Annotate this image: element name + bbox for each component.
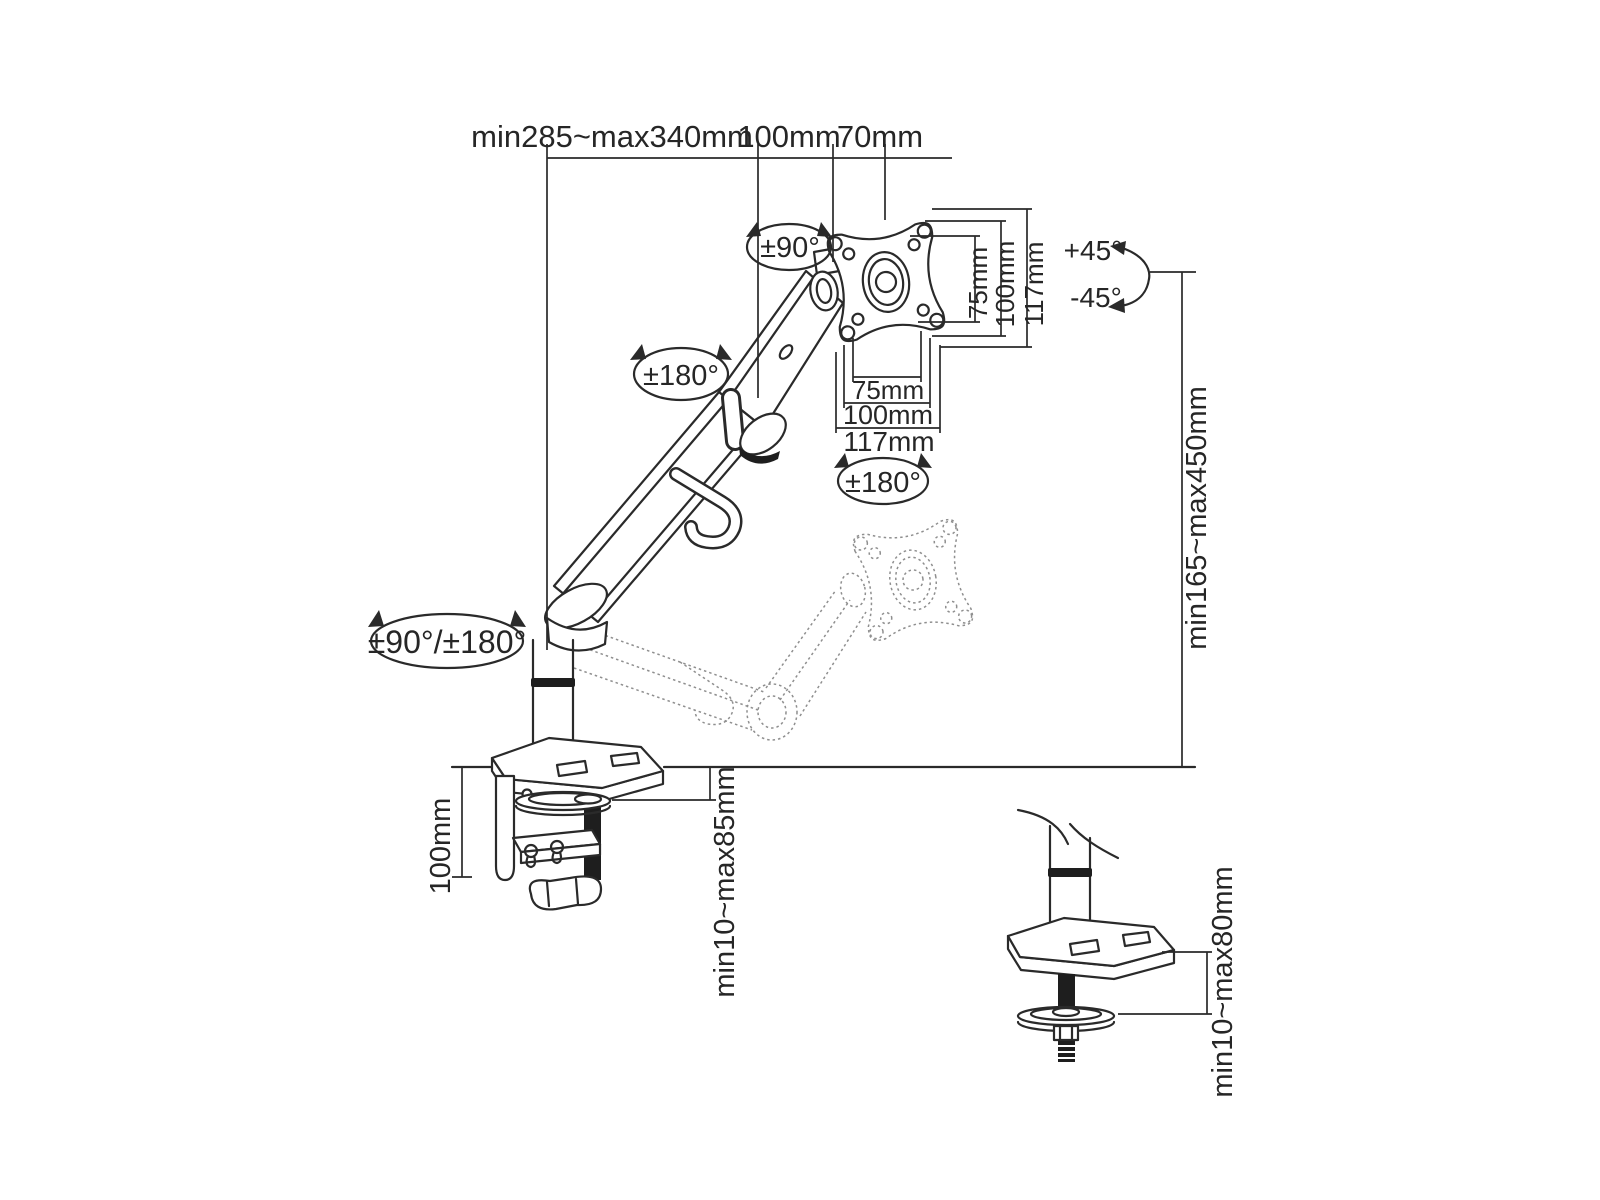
pole <box>531 575 614 744</box>
rotation-plate-label: ±180° <box>845 467 921 499</box>
clamp-knob <box>530 876 601 909</box>
dim-label-grommet-thickness: min10~max80mm <box>1207 866 1239 1097</box>
tilt-arc <box>1121 249 1149 306</box>
vesa-vertical-100-label: 100mm <box>990 241 1020 328</box>
dim-label-top-span: min285~max340mm <box>471 119 753 154</box>
rotation-arrow <box>630 344 646 360</box>
dim-label-top-70: 70mm <box>837 119 923 154</box>
tilt-up-label: +45° <box>1064 235 1123 266</box>
dim-label-top-100: 100mm <box>737 119 840 154</box>
rotation-head-swivel-label: ±90° <box>760 232 820 264</box>
pole-break-lines <box>1018 810 1118 858</box>
clamp-back-plate <box>496 776 514 880</box>
diagram-page: min285~max340mm 100mm 70mm 75mm 100mm 11… <box>0 0 1600 1200</box>
rotation-base-label: ±90°/±180° <box>368 624 527 660</box>
desk-clamp <box>492 738 663 909</box>
vesa-vertical-75-label: 75mm <box>963 247 993 319</box>
grommet-mount-detail <box>1008 810 1174 1062</box>
tilt-down-label: -45° <box>1070 282 1122 313</box>
dim-label-clamp-height: 100mm <box>425 798 457 895</box>
dim-label-height-range: min165~max450mm <box>1181 386 1213 650</box>
vesa-plate <box>827 222 946 343</box>
rotation-arm-label: ±180° <box>643 360 719 392</box>
rotation-arrow <box>716 344 732 360</box>
grommet-nut <box>1054 1026 1078 1040</box>
vesa-vertical-117-label: 117mm <box>1019 242 1049 327</box>
clamp-washer <box>516 792 610 815</box>
monitor-arm-technical-diagram: min285~max340mm 100mm 70mm 75mm 100mm 11… <box>0 0 1600 1200</box>
pole-height-band <box>531 678 575 687</box>
ghost-vesa-plate <box>852 518 974 642</box>
vesa-horizontal-117-label: 117mm <box>843 426 934 457</box>
dim-label-clamp-thickness: min10~max85mm <box>709 766 741 997</box>
